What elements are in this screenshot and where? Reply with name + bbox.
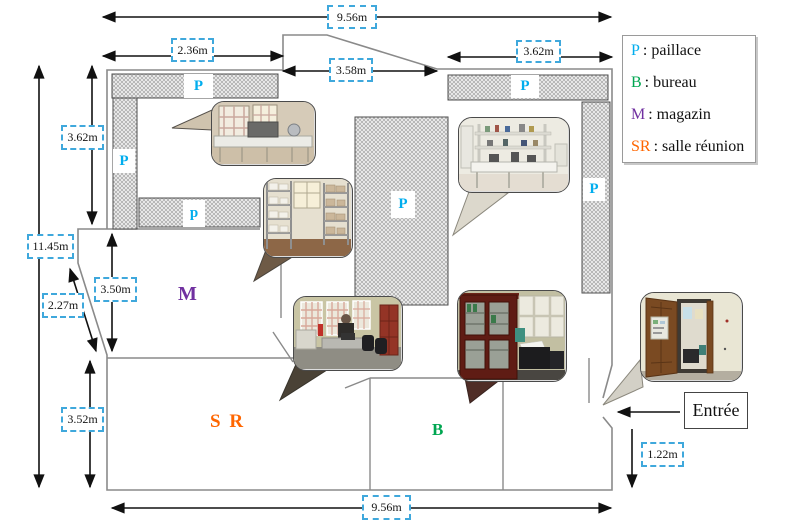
legend-item-bureau: B: bureau xyxy=(631,74,747,92)
bench-mark-top-right: P xyxy=(511,75,539,98)
dimension-label-top-mid-width: 3.58m xyxy=(329,58,373,82)
photo-lab-bench-right-image xyxy=(459,118,568,191)
photo-storage-shelves xyxy=(263,178,353,258)
bench-mark-left-letter: P xyxy=(119,153,128,170)
dimension-label-diagonal-wall: 2.27m xyxy=(42,293,84,318)
legend-item-paillace: P: paillace xyxy=(631,42,747,60)
bench-mark-top-left: P xyxy=(184,74,213,98)
photo-meeting-room-image xyxy=(294,297,401,369)
tail-photo-entrance xyxy=(603,360,643,405)
entrance-label-box: Entrée xyxy=(684,392,748,429)
room-label-bureau: B xyxy=(432,420,443,440)
photo-entrance-door xyxy=(640,292,743,382)
legend-symbol-paillace: P xyxy=(631,42,640,59)
dimension-label-bottom-width: 9.56m xyxy=(362,495,411,520)
photo-lab-bench-right xyxy=(458,117,570,193)
bench-mark-top-left-letter: P xyxy=(194,78,203,95)
photo-meeting-room xyxy=(293,296,403,371)
legend-symbol-bureau: B xyxy=(631,74,642,91)
dimension-label-magazin-height: 3.50m xyxy=(94,277,137,302)
tail-photo-lab1 xyxy=(172,110,212,130)
dimension-label-salle-reunion-height: 3.52m xyxy=(61,407,104,432)
bench-mark-right: P xyxy=(583,178,605,201)
photo-lab-bench-left-image xyxy=(212,102,314,164)
dimension-label-left-total-height: 11.45m xyxy=(27,234,74,259)
legend-text-paillace: : paillace xyxy=(643,42,701,59)
tail-photo-lab2 xyxy=(453,189,508,235)
dimension-label-top-left-width: 2.36m xyxy=(171,38,214,62)
dimension-label-top-right-width: 3.62m xyxy=(516,40,561,63)
dimension-label-left-upper-height: 3.62m xyxy=(61,125,104,150)
bench-mark-right-letter: P xyxy=(589,181,598,198)
legend-text-magazin: : magazin xyxy=(648,106,711,123)
legend-symbol-salle-reunion: SR xyxy=(631,138,651,155)
dimension-label-entrance-offset: 1.22m xyxy=(641,442,684,467)
bench-mark-left: P xyxy=(113,149,135,173)
bench-mark-central: P xyxy=(391,191,415,218)
legend-text-salle-reunion: : salle réunion xyxy=(654,138,745,155)
room-label-magazin: M xyxy=(178,283,197,306)
dimension-label-top-width: 9.56m xyxy=(327,5,377,29)
bench-mark-middle-letter: p xyxy=(190,205,198,222)
photo-bureau-cabinet-image xyxy=(458,291,565,380)
laboratory-floor-plan: P P p P P P M S R B 9.56m 2.36m 3.58m 3.… xyxy=(0,0,801,530)
photo-entrance-door-image xyxy=(641,293,741,380)
legend-symbol-magazin: M xyxy=(631,106,645,123)
outer-walls xyxy=(78,35,612,490)
photo-bureau-cabinet xyxy=(457,290,567,382)
bench-mark-central-letter: P xyxy=(398,196,407,213)
legend-text-bureau: : bureau xyxy=(645,74,697,91)
bench-mark-top-right-letter: P xyxy=(520,78,529,95)
room-label-salle-reunion: S R xyxy=(210,411,245,433)
legend-item-salle-reunion: SR: salle réunion xyxy=(631,138,747,156)
bench-mark-middle: p xyxy=(183,200,205,227)
legend-box: P: paillace B: bureau M: magazin SR: sal… xyxy=(622,35,756,163)
legend-item-magazin: M: magazin xyxy=(631,106,747,124)
photo-storage-shelves-image xyxy=(264,179,351,256)
photo-lab-bench-left xyxy=(211,101,316,166)
entrance-label: Entrée xyxy=(693,400,740,421)
